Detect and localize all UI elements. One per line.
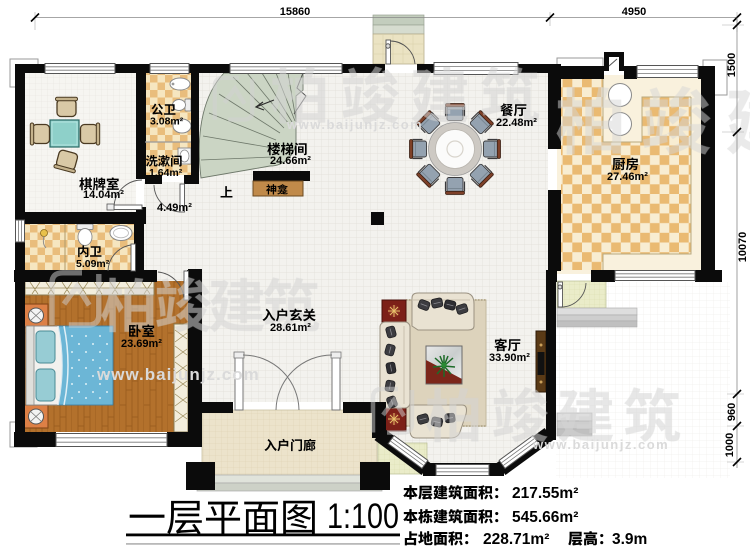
- svg-text:28.61m²: 28.61m²: [270, 322, 311, 334]
- svg-text:10070: 10070: [737, 232, 749, 263]
- svg-text:www.baijunjz.com: www.baijunjz.com: [532, 437, 669, 452]
- svg-text:228.71m²: 228.71m²: [483, 531, 549, 548]
- svg-text:33.90m²: 33.90m²: [489, 352, 530, 364]
- svg-text:1000: 1000: [724, 433, 736, 457]
- svg-text:24.66m²: 24.66m²: [270, 155, 311, 167]
- svg-text:1:100: 1:100: [327, 497, 399, 536]
- svg-text:4.49m²: 4.49m²: [157, 202, 192, 214]
- svg-text:22.48m²: 22.48m²: [496, 117, 537, 129]
- svg-text:www.baijunjz.com: www.baijunjz.com: [286, 117, 423, 132]
- svg-text:545.66m²: 545.66m²: [512, 509, 578, 526]
- svg-text:4950: 4950: [622, 6, 646, 18]
- svg-text:15860: 15860: [280, 6, 311, 18]
- svg-text:23.69m²: 23.69m²: [121, 338, 162, 350]
- svg-text:1.64m²: 1.64m²: [149, 167, 183, 179]
- svg-text:217.55m²: 217.55m²: [512, 485, 578, 502]
- svg-text:14.04m²: 14.04m²: [83, 189, 124, 201]
- svg-text:5.09m²: 5.09m²: [76, 258, 110, 270]
- svg-text:1500: 1500: [726, 53, 738, 77]
- svg-text:3.08m²: 3.08m²: [150, 116, 184, 128]
- svg-text:960: 960: [726, 403, 738, 421]
- svg-text:3.9m: 3.9m: [612, 531, 647, 548]
- svg-text:www.baijunjz.com: www.baijunjz.com: [96, 365, 260, 384]
- svg-text:27.46m²: 27.46m²: [607, 171, 648, 183]
